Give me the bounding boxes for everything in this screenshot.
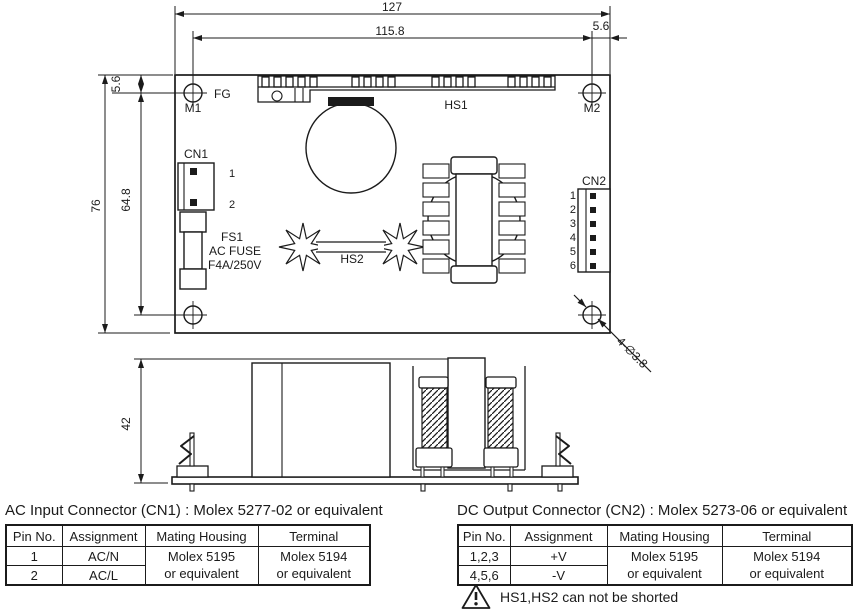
cn2-terminal-cell: Molex 5194 or equivalent	[722, 547, 852, 586]
fuse-type-label: AC FUSE	[209, 244, 261, 258]
transformer-winding-left	[422, 388, 447, 448]
cn1-pin-cell: 2	[6, 566, 62, 586]
cn2-header-housing: Mating Housing	[607, 525, 722, 547]
cn2-row-1: 1,2,3 +V Molex 5195 or equivalent Molex …	[458, 547, 852, 566]
cn2-pin-6: 6	[570, 260, 576, 272]
cn2-connector	[578, 189, 610, 272]
warning-text: HS1,HS2 can not be shorted	[500, 589, 678, 605]
m1-label: M1	[185, 101, 202, 115]
fg-label: FG	[214, 87, 231, 101]
cn2-pin-cell: 1,2,3	[458, 547, 510, 566]
transformer-side	[413, 358, 525, 477]
mounting-clip-left	[177, 433, 208, 477]
dim-total-height: 76	[89, 199, 103, 213]
cn1-assignment-cell: AC/L	[62, 566, 145, 586]
transformer-winding-right	[488, 388, 513, 448]
cn2-pin-1: 1	[570, 190, 576, 202]
dim-side-height: 42	[119, 417, 133, 431]
pcb-side	[172, 477, 578, 484]
cn2-table: Pin No. Assignment Mating Housing Termin…	[457, 524, 853, 586]
cn1-header-terminal: Terminal	[258, 525, 370, 547]
cn1-connector	[178, 163, 214, 210]
cn1-header-row: Pin No. Assignment Mating Housing Termin…	[6, 525, 370, 547]
cn2-table-title: DC Output Connector (CN2) : Molex 5273-0…	[457, 502, 853, 519]
dim-hole-offset-top: 5.6	[109, 75, 123, 92]
top-view: HS1 FG M1 M2	[175, 75, 651, 372]
cn2-pin-2: 2	[570, 204, 576, 216]
pcb-outline	[175, 75, 610, 333]
cn2-pin-3: 3	[570, 218, 576, 230]
transformer-core	[448, 358, 485, 468]
cn1-table: Pin No. Assignment Mating Housing Termin…	[5, 524, 371, 586]
cn1-assignment-cell: AC/N	[62, 547, 145, 566]
capacitor-side	[252, 363, 390, 477]
dim-hole-span-height: 64.8	[119, 188, 133, 212]
warning-note: HS1,HS2 can not be shorted	[461, 583, 678, 610]
cn2-table-section: DC Output Connector (CN2) : Molex 5273-0…	[457, 502, 853, 586]
hs2-label: HS2	[340, 252, 364, 266]
cn2-label: CN2	[582, 174, 606, 188]
dim-hole-span-width: 115.8	[375, 24, 404, 38]
cn1-table-section: AC Input Connector (CN1) : Molex 5277-02…	[5, 502, 383, 586]
cn1-label: CN1	[184, 147, 208, 161]
cn1-header-pin: Pin No.	[6, 525, 62, 547]
dim-total-width: 127	[382, 0, 402, 14]
fuse-rating-label: F4A/250V	[208, 258, 261, 272]
mounting-clip-right	[542, 433, 573, 477]
fs1-label: FS1	[221, 230, 243, 244]
mechanical-drawing: HS1 FG M1 M2	[0, 0, 857, 500]
cn2-pin-4: 4	[570, 232, 576, 244]
warning-icon	[461, 583, 491, 610]
cn1-terminal-cell: Molex 5194 or equivalent	[258, 547, 370, 586]
cn2-assignment-cell: +V	[510, 547, 607, 566]
cn2-pin-5: 5	[570, 246, 576, 258]
cn1-header-housing: Mating Housing	[145, 525, 258, 547]
hs1-label: HS1	[444, 98, 468, 112]
side-view: 42	[119, 358, 578, 491]
cn2-housing-cell: Molex 5195 or equivalent	[607, 547, 722, 586]
cn2-header-pin: Pin No.	[458, 525, 510, 547]
fs1-fuse	[180, 212, 206, 289]
m2-label: M2	[584, 101, 601, 115]
cn1-pin-1: 1	[229, 168, 235, 180]
cn2-header-row: Pin No. Assignment Mating Housing Termin…	[458, 525, 852, 547]
hole-callout-label: 4-∅3.8	[614, 334, 651, 371]
cn1-row-1: 1 AC/N Molex 5195 or equivalent Molex 51…	[6, 547, 370, 566]
capacitor-vent-bar	[328, 97, 374, 106]
mechanical-spec-page: HS1 FG M1 M2	[0, 0, 857, 613]
cn2-header-assignment: Assignment	[510, 525, 607, 547]
cn2-header-terminal: Terminal	[722, 525, 852, 547]
cn1-table-title: AC Input Connector (CN1) : Molex 5277-02…	[5, 502, 383, 519]
cn1-housing-cell: Molex 5195 or equivalent	[145, 547, 258, 586]
dim-hole-offset-right: 5.6	[593, 19, 610, 33]
pcb-pins	[190, 484, 562, 491]
cn1-pin-2: 2	[229, 199, 235, 211]
cn1-header-assignment: Assignment	[62, 525, 145, 547]
cn1-pin-cell: 1	[6, 547, 62, 566]
